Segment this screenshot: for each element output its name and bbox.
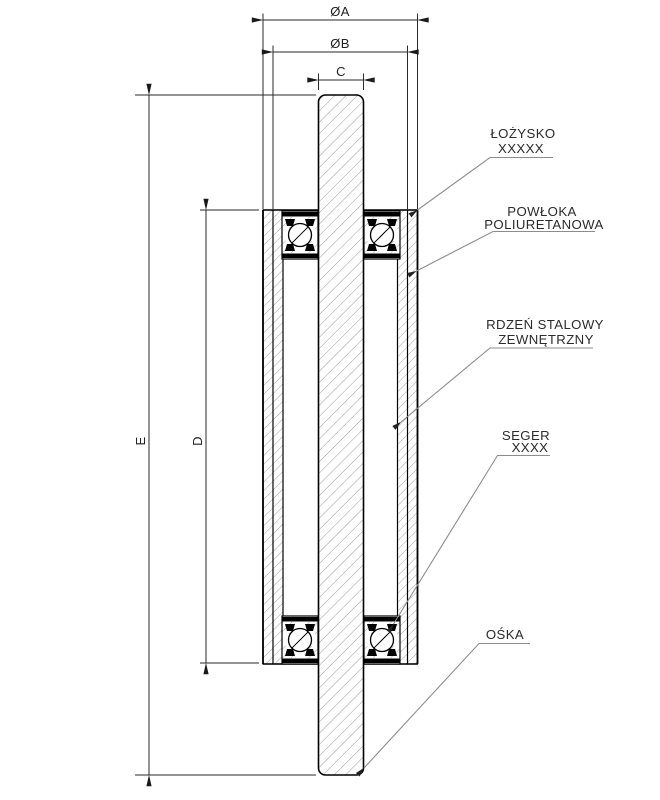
oa-label: ØA [330,4,350,19]
callout-coating-line2: POLIURETANOWA [484,217,604,232]
callout-core-line1: RDZEŃ STALOWY [486,317,604,332]
callout-bearing-line2: XXXXX [498,141,544,156]
callout-core: RDZEŃ STALOWY ZEWNĘTRZNY [401,317,604,422]
bearing-top-right [364,211,400,259]
bearing-bottom-left [282,616,318,664]
coating-right-section [408,210,418,664]
callout-core-line2: ZEWNĘTRZNY [498,332,594,347]
callout-coating-leader [417,232,596,272]
coating-left-section [263,210,273,664]
callout-seger-line2: XXXX [512,440,549,455]
e-label: E [133,436,148,445]
callout-axle-line1: OŚKA [486,627,524,642]
technical-drawing-page: ØA ØB C E D [0,0,660,800]
d-label: D [190,436,205,446]
callout-bearing-line1: ŁOŻYSKO [490,126,555,141]
wheel-cross-section-drawing: ØA ØB C E D [0,0,660,800]
callout-bearing-leader [418,158,554,211]
ob-label: ØB [330,36,350,51]
callout-core-leader [401,348,593,422]
wheel-assembly [263,95,418,775]
dimension-d: D [190,210,259,663]
c-label: C [336,64,346,79]
callout-bearing: ŁOŻYSKO XXXXX [418,126,556,210]
bearing-top-left [282,211,318,259]
callout-coating: POWŁOKA POLIURETANOWA [417,204,604,271]
steel-core-left-section [273,210,283,664]
dimension-c: C [319,64,364,90]
dimension-e: E [133,95,316,775]
axle-shaft [319,95,364,775]
steel-core-right-section [398,210,408,664]
